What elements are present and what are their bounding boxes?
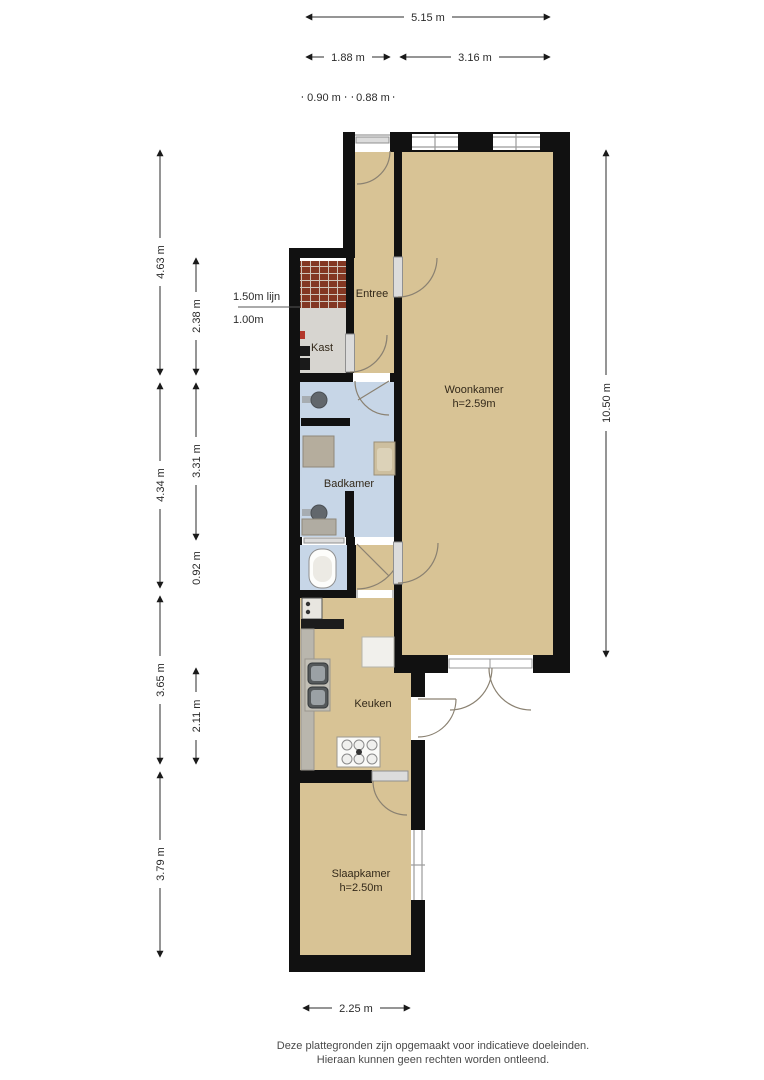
svg-text:2.11 m: 2.11 m [191,700,203,733]
dim-top-total: 5.15 m [306,9,550,25]
toilet-door-opening [302,537,346,545]
svg-text:3.65 m: 3.65 m [155,663,167,697]
floor-entree [348,140,400,385]
floor-plan-svg: Entree Kast Badkamer Woonkamer h=2.59m K… [0,0,764,1080]
svg-text:3.79 m: 3.79 m [155,847,167,881]
svg-text:2.38 m: 2.38 m [191,299,203,333]
shower-icon [303,436,334,467]
meter-cabinet-icon [300,346,310,356]
dim-left-outer-3: 3.65 m [152,596,168,764]
label-woonkamer-height: h=2.59m [452,398,495,410]
badkamer-door-opening [353,373,390,382]
dim-top-small-right: 0.88 m [352,89,394,105]
dim-bottom: 2.25 m [303,1000,410,1016]
footer-line-2: Hieraan kunnen geen rechten worden ontle… [317,1054,549,1066]
hall-keuken-opening [356,590,394,598]
dim-top-right: 3.16 m [400,49,550,65]
dim-right-total: 10.50 m [598,150,614,657]
dim-left-inner-4: 2.11 m [188,668,204,764]
svg-text:0.90 m: 0.90 m [307,92,341,104]
note-line-label: 1.50m lijn [233,291,280,303]
kitchen-appliance-icon [302,598,322,619]
dim-left-outer-4: 3.79 m [152,772,168,957]
svg-text:4.63 m: 4.63 m [155,245,167,279]
svg-text:3.31 m: 3.31 m [191,444,203,478]
hall-door-opening [355,537,394,545]
label-slaapkamer-height: h=2.50m [339,882,382,894]
footer-disclaimer: Deze plattegronden zijn opgemaakt voor i… [277,1040,590,1066]
keuken-door-opening [411,697,425,740]
double-door-opening [448,655,533,673]
svg-text:5.15 m: 5.15 m [411,12,445,24]
vanity-icon [302,519,336,535]
svg-text:3.16 m: 3.16 m [458,52,492,64]
dim-left-inner-1: 2.38 m [188,258,204,375]
dim-left-inner-3: 0.92 m [188,544,204,592]
room-floors [298,140,558,960]
window-top-2 [493,134,540,150]
window-slaapkamer [411,830,425,900]
window-top-1 [412,134,458,150]
dim-left-inner-2: 3.31 m [188,383,204,540]
fridge-icon [362,637,394,667]
label-kast: Kast [311,342,333,354]
floor-stairs-brick [300,261,346,308]
dim-top-small-left: 0.90 m [302,89,346,105]
svg-text:10.50 m: 10.50 m [601,383,613,423]
svg-text:1.88 m: 1.88 m [331,52,365,64]
label-badkamer: Badkamer [324,478,374,490]
stove-icon [337,737,380,767]
footer-line-1: Deze plattegronden zijn opgemaakt voor i… [277,1040,590,1052]
dim-left-outer-2: 4.34 m [152,383,168,588]
dim-top-left: 1.88 m [306,49,390,65]
svg-text:0.92 m: 0.92 m [191,551,203,585]
dim-left-outer-1: 4.63 m [152,150,168,375]
svg-text:0.88 m: 0.88 m [356,92,390,104]
svg-text:2.25 m: 2.25 m [339,1003,373,1015]
floorplan-page: Entree Kast Badkamer Woonkamer h=2.59m K… [0,0,764,1080]
note-height-label: 1.00m [233,314,264,326]
label-keuken: Keuken [354,698,391,710]
label-entree: Entree [356,288,388,300]
label-slaapkamer: Slaapkamer [332,868,391,880]
svg-text:4.34 m: 4.34 m [155,468,167,502]
label-woonkamer: Woonkamer [444,384,503,396]
